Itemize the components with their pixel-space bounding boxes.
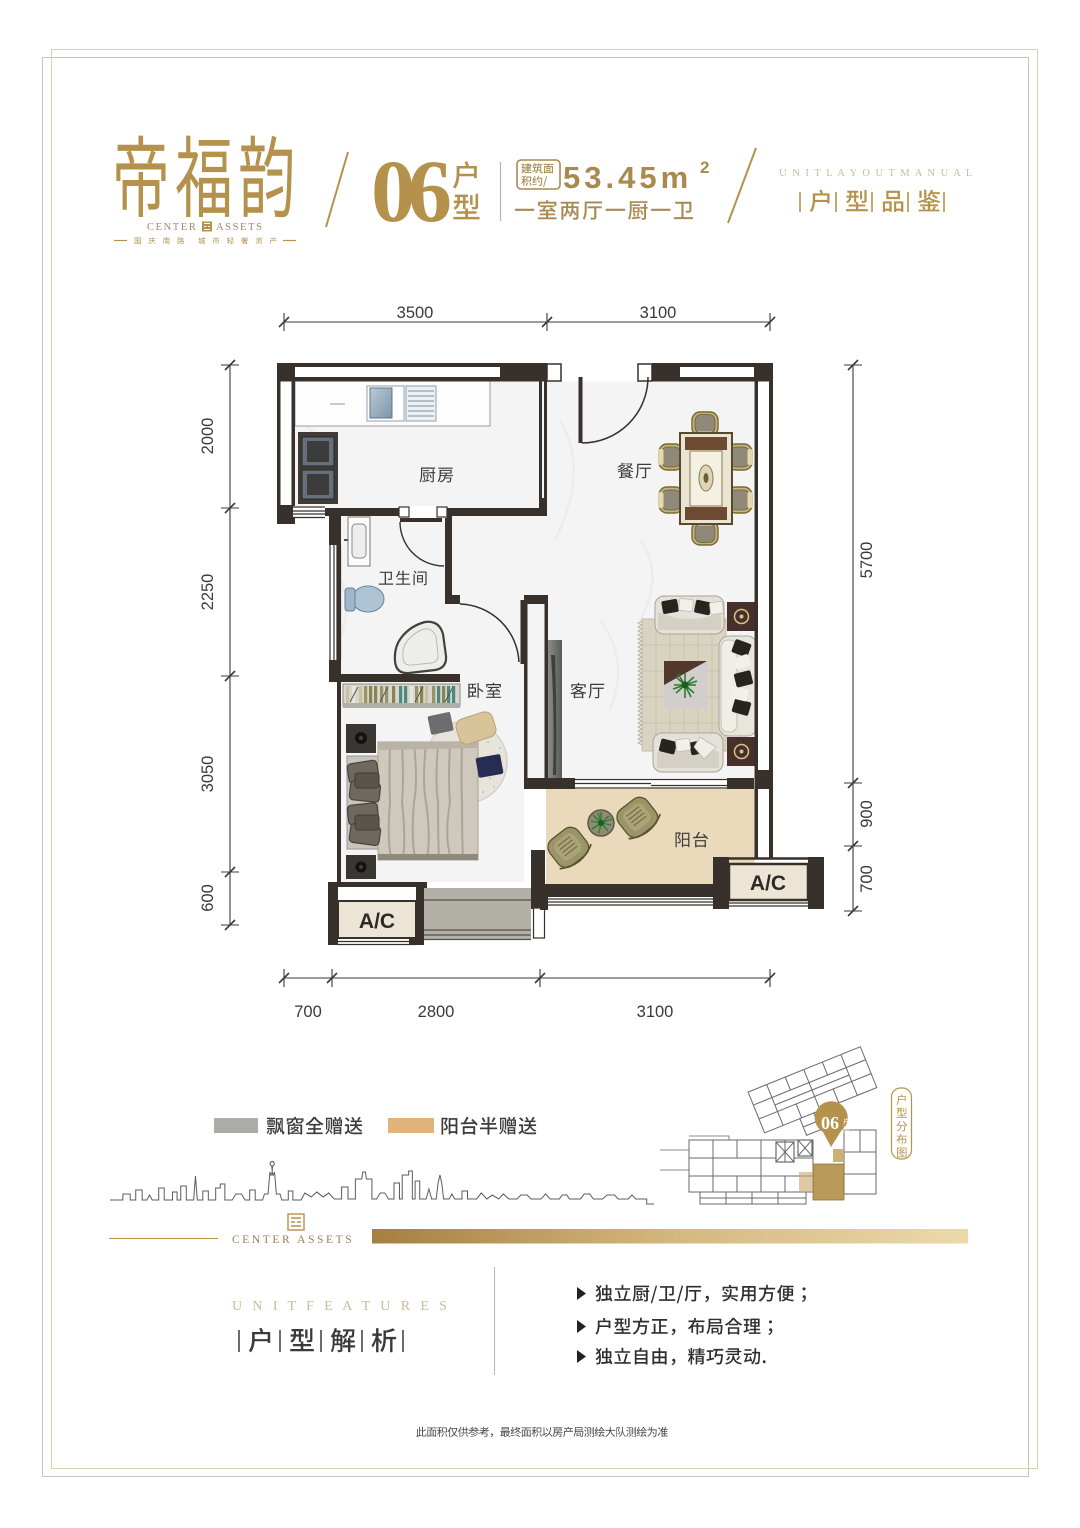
svg-text:U N I T F E A T U R E S: U N I T F E A T U R E S <box>232 1299 450 1314</box>
svg-text:3050: 3050 <box>199 756 217 793</box>
svg-text:2800: 2800 <box>418 1003 455 1021</box>
svg-text:2: 2 <box>700 158 709 177</box>
svg-text:A/C: A/C <box>750 872 786 895</box>
svg-text:5700: 5700 <box>858 542 876 579</box>
svg-text:U N I T L A Y O U T M A N U: U N I T L A Y O U T M A N U A L <box>779 168 974 179</box>
svg-text:3100: 3100 <box>637 1003 674 1021</box>
svg-text:700: 700 <box>858 865 876 893</box>
svg-text:CENTER: CENTER <box>147 222 197 233</box>
svg-text:06: 06 <box>821 1113 839 1133</box>
svg-text:900: 900 <box>858 800 876 828</box>
svg-text:700: 700 <box>294 1003 322 1021</box>
svg-text:A/C: A/C <box>359 910 395 933</box>
svg-text:ASSETS: ASSETS <box>216 222 264 233</box>
svg-text:3100: 3100 <box>640 304 677 322</box>
svg-text:53.45m: 53.45m <box>563 160 692 195</box>
svg-text:3500: 3500 <box>397 304 434 322</box>
svg-text:06: 06 <box>371 143 452 241</box>
svg-text:CENTER ASSETS: CENTER ASSETS <box>232 1234 354 1246</box>
svg-text:2250: 2250 <box>199 574 217 611</box>
svg-text:600: 600 <box>199 884 217 912</box>
svg-text:2000: 2000 <box>199 418 217 455</box>
